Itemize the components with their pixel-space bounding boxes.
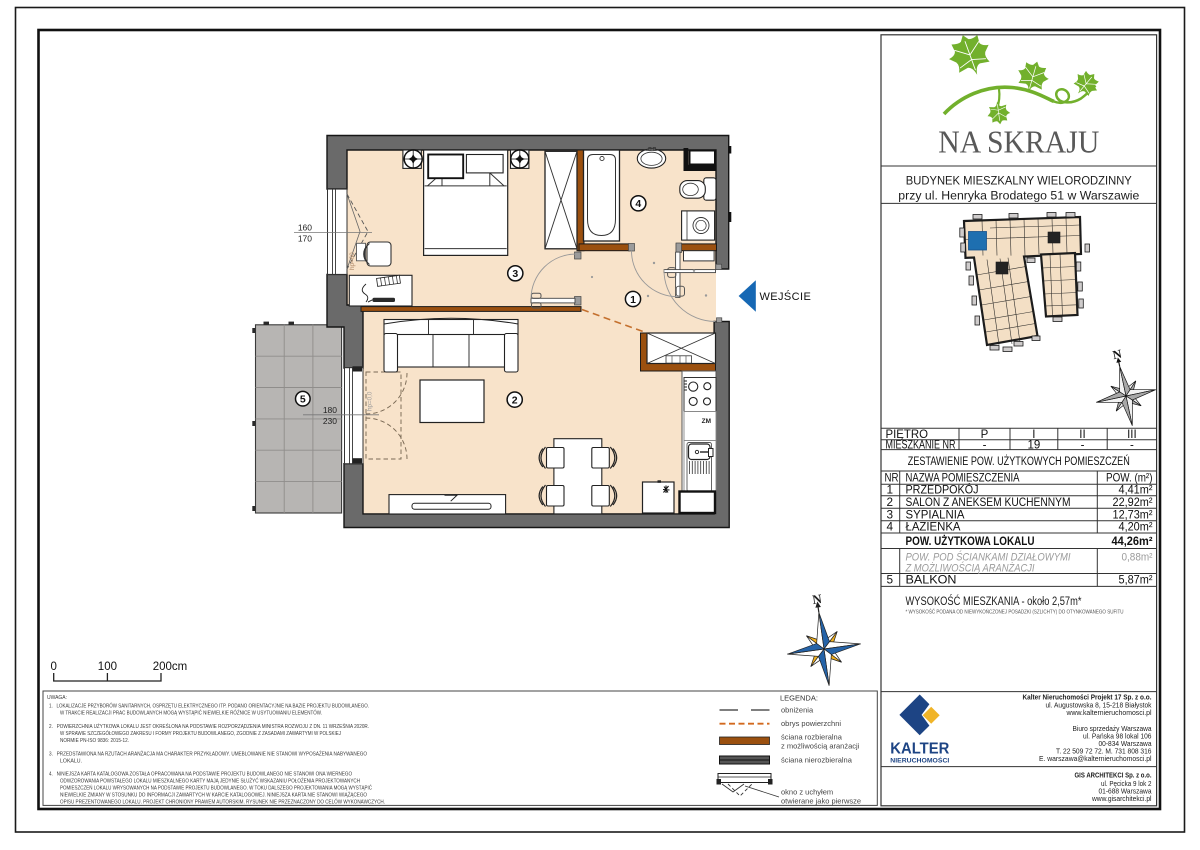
svg-text:ściana rozbieralna: ściana rozbieralna bbox=[781, 733, 843, 742]
svg-text:* WYSOKOŚĆ PODANA OD NIEWYKOŃC: * WYSOKOŚĆ PODANA OD NIEWYKOŃCZONEJ POSA… bbox=[906, 608, 1124, 616]
svg-text:NIERUCHOMOŚCI: NIERUCHOMOŚCI bbox=[890, 756, 949, 765]
svg-text:180: 180 bbox=[323, 405, 337, 415]
svg-text:5: 5 bbox=[887, 573, 894, 587]
svg-text:hp=0,0: hp=0,0 bbox=[367, 391, 374, 411]
svg-text:POMIESZCZEŃ LOKALU WRYSOWANYCH: POMIESZCZEŃ LOKALU WRYSOWANYCH NA PODSTA… bbox=[60, 785, 372, 792]
svg-text:19: 19 bbox=[1028, 439, 1041, 451]
svg-text:2: 2 bbox=[512, 394, 518, 406]
svg-text:1: 1 bbox=[630, 294, 636, 306]
svg-text:1. LOKALIZACJE PRZYBORÓW SAN: 1. LOKALIZACJE PRZYBORÓW SANITARNYCH, OS… bbox=[49, 703, 369, 710]
svg-text:5: 5 bbox=[300, 394, 306, 406]
svg-text:z możliwością aranżacji: z możliwością aranżacji bbox=[781, 742, 860, 751]
svg-text:3: 3 bbox=[512, 268, 518, 280]
svg-text:przy ul. Henryka Brodatego 51: przy ul. Henryka Brodatego 51 w Warszawi… bbox=[898, 189, 1139, 203]
svg-text:-: - bbox=[983, 439, 987, 451]
svg-text:200cm: 200cm bbox=[153, 661, 188, 673]
svg-text:WEJŚCIE: WEJŚCIE bbox=[760, 290, 812, 303]
svg-text:obrys powierzchni: obrys powierzchni bbox=[781, 719, 841, 728]
svg-text:-: - bbox=[1130, 439, 1134, 451]
svg-text:WYSOKOŚĆ MIESZKANIA - około 2,: WYSOKOŚĆ MIESZKANIA - około 2,57m* bbox=[906, 593, 1082, 608]
svg-text:UWAGA:: UWAGA: bbox=[47, 695, 67, 701]
svg-text:ściana nierozbieralna: ściana nierozbieralna bbox=[781, 756, 853, 765]
svg-text:obniżenia: obniżenia bbox=[781, 706, 814, 715]
svg-text:44,26m²: 44,26m² bbox=[1112, 534, 1153, 548]
svg-text:160: 160 bbox=[298, 223, 312, 233]
svg-text:100: 100 bbox=[98, 661, 117, 673]
svg-text:www.gisarchitekci.pl: www.gisarchitekci.pl bbox=[1091, 794, 1152, 803]
svg-text:0: 0 bbox=[50, 661, 56, 673]
svg-text:ŁAZIENKA: ŁAZIENKA bbox=[906, 520, 961, 534]
svg-text:ZESTAWIENIE POW. UŻYTKOWYCH PO: ZESTAWIENIE POW. UŻYTKOWYCH POMIESZCZEŃ bbox=[908, 455, 1130, 468]
svg-text:BALKON: BALKON bbox=[906, 573, 957, 587]
svg-text:W SPRAWIE SZCZEGÓŁOWEGO ZAKRES: W SPRAWIE SZCZEGÓŁOWEGO ZAKRESU I FORMY … bbox=[60, 730, 341, 737]
svg-text:LEGENDA:: LEGENDA: bbox=[780, 694, 818, 703]
svg-text:POW. UŻYTKOWA LOKALU: POW. UŻYTKOWA LOKALU bbox=[906, 534, 1035, 548]
svg-text:W TRAKCIE REALIZACJI PRAC BUDO: W TRAKCIE REALIZACJI PRAC BUDOWLANYCH MO… bbox=[60, 710, 322, 717]
svg-text:KALTER: KALTER bbox=[890, 741, 949, 758]
svg-text:ZM: ZM bbox=[702, 418, 711, 425]
svg-text:OPISU PREZENTOWANEGO LOKALU. P: OPISU PREZENTOWANEGO LOKALU. PROJEKT CHR… bbox=[60, 799, 385, 806]
svg-text:5,87m²: 5,87m² bbox=[1119, 573, 1153, 587]
svg-text:E. warszawa@kalternieruchomosc: E. warszawa@kalternieruchomosci.pl bbox=[1039, 754, 1152, 763]
svg-text:NA SKRAJU: NA SKRAJU bbox=[938, 125, 1099, 160]
svg-text:LOKALU.: LOKALU. bbox=[60, 759, 82, 765]
svg-text:170: 170 bbox=[298, 234, 312, 244]
svg-text:4,20m²: 4,20m² bbox=[1119, 520, 1153, 534]
svg-text:MIESZKANIE NR: MIESZKANIE NR bbox=[886, 439, 956, 451]
svg-text:ODWZOROWANIA POWSTAŁEGO LOKALU: ODWZOROWANIA POWSTAŁEGO LOKALU MIESZKALN… bbox=[60, 778, 360, 785]
svg-text:230: 230 bbox=[323, 416, 337, 426]
svg-text:BUDYNEK MIESZKALNY WIELORODZIN: BUDYNEK MIESZKALNY WIELORODZINNY bbox=[906, 174, 1132, 188]
svg-text:otwierane jako pierwsze: otwierane jako pierwsze bbox=[781, 797, 861, 806]
svg-text:4: 4 bbox=[635, 198, 641, 210]
svg-text:hp=60: hp=60 bbox=[349, 252, 356, 270]
svg-text:4: 4 bbox=[887, 520, 894, 534]
svg-text:www.kalternieruchomosci.pl: www.kalternieruchomosci.pl bbox=[1066, 708, 1152, 717]
svg-text:NIEWIELKIE ZMIANY W STOSUNKU D: NIEWIELKIE ZMIANY W STOSUNKU DO INFORMAC… bbox=[60, 792, 367, 799]
svg-text:2. POWIERZCHNIA UŻYTKOWA LOK: 2. POWIERZCHNIA UŻYTKOWA LOKALU JEST OKR… bbox=[49, 722, 369, 730]
svg-text:0,88m²: 0,88m² bbox=[1122, 552, 1153, 564]
svg-text:-: - bbox=[1081, 439, 1085, 451]
svg-text:3. PRZEDSTAWIONA NA RZUTACH: 3. PRZEDSTAWIONA NA RZUTACH ARANŻACJA MA… bbox=[49, 751, 367, 758]
svg-text:okno z uchyłem: okno z uchyłem bbox=[781, 788, 833, 797]
svg-text:NORMIE PN-ISO 9836: 2015-12.: NORMIE PN-ISO 9836: 2015-12. bbox=[60, 738, 129, 744]
svg-text:4. NINIEJSZA KARTA KATALOGOW: 4. NINIEJSZA KARTA KATALOGOWA ZOSTAŁA OP… bbox=[49, 772, 352, 778]
